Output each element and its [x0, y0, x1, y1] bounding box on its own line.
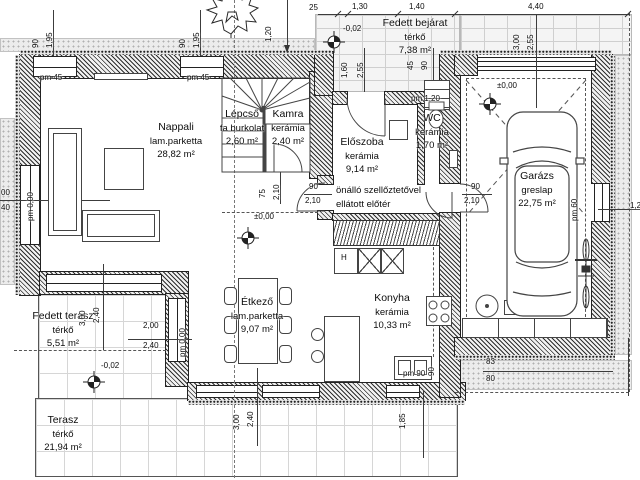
- room-area: 2,40 m²: [271, 135, 305, 149]
- sofa-vertical-cushion: [53, 133, 77, 231]
- dimension-label: 80: [486, 374, 495, 383]
- room-area: 21,94 m²: [44, 441, 82, 455]
- dimension-label: 90: [471, 182, 480, 191]
- window-south-1: [196, 385, 258, 398]
- room-area: 1,70 m²: [415, 139, 449, 153]
- dimension-label: ±0,00: [254, 212, 274, 221]
- dimension-label: 90: [427, 367, 436, 376]
- garage-box: [504, 300, 530, 315]
- dimension-label: 1,60: [340, 62, 349, 78]
- gravel-strip-bottom-right: [455, 360, 632, 390]
- dimension-label: 4,40: [528, 2, 544, 11]
- window-terrace-top: [46, 274, 162, 292]
- room-label: Előszobakerámia9,14 m²: [340, 136, 383, 177]
- room-area: 10,33 m²: [373, 319, 411, 333]
- dimension-label: 40: [1, 203, 10, 212]
- vestibule-closet: [333, 220, 440, 246]
- insulation-garage-bottom: [455, 355, 615, 360]
- room-area: 2,60 m²: [220, 135, 264, 149]
- dimension-label: pm 45: [187, 73, 209, 82]
- window-garage-east: [594, 183, 610, 222]
- room-label: Konyhakerámia10,33 m²: [373, 292, 411, 333]
- overhang-bottom: [455, 392, 629, 393]
- room-floor: kerámia: [340, 150, 383, 164]
- wall-garage-right-a: [592, 55, 612, 183]
- dimension-label: -0,02: [101, 361, 119, 370]
- dimension-label: 83: [486, 357, 495, 366]
- dimension-label: 1,40: [409, 2, 425, 11]
- room-name: Kamra: [271, 108, 305, 122]
- dimension-label: 1,2: [630, 201, 640, 210]
- room-name: Fedett bejárat: [383, 17, 448, 31]
- dimension-label: pm 1,20: [411, 94, 440, 103]
- sofa-horizontal-cushion: [87, 214, 155, 237]
- dimension-label: pm 60: [570, 199, 579, 221]
- floor-plan-canvas: Nappalilam.parketta28,82 m²Lépcsőfa burk…: [0, 0, 640, 480]
- dimension-label: 1,30: [352, 2, 368, 11]
- room-name: Konyha: [373, 292, 411, 306]
- stove: [426, 296, 452, 326]
- dim-line-top: [318, 14, 630, 15]
- dim-line-terrace-win: [103, 264, 104, 350]
- room-floor: lam.parketta: [231, 310, 283, 324]
- dimension-label: 90: [420, 61, 429, 70]
- island-stool: [311, 328, 324, 341]
- dim-line-garagedoor: [536, 14, 537, 108]
- dimension-label: 45: [406, 61, 415, 70]
- dimension-label: 3,00: [232, 414, 241, 430]
- dimension-label: 3,00: [78, 310, 87, 326]
- dimension-label: 90: [31, 39, 40, 48]
- wall-garage-top-a: [455, 55, 477, 75]
- dimension-label: 2,10: [464, 196, 480, 205]
- insulation-right: [610, 55, 615, 355]
- room-label: Garázsgreslap22,75 m²: [518, 170, 556, 211]
- dimension-label: 90: [309, 182, 318, 191]
- wall-hall-stub-b: [318, 211, 333, 219]
- room-floor: térkő: [44, 428, 82, 442]
- centerline-vertical: [234, 0, 235, 478]
- tree: [207, 0, 258, 38]
- tv-console: [94, 73, 148, 80]
- dimension-label: -0,02: [343, 24, 361, 33]
- room-label: Lépcsőfa burkolat2,60 m²: [220, 108, 264, 149]
- room-area: 28,82 m²: [150, 148, 202, 162]
- dimension-label: 2,55: [356, 62, 365, 78]
- dimension-label: 00: [1, 188, 10, 197]
- dimension-label: 75: [258, 189, 267, 198]
- room-label: WCkerámia1,70 m²: [415, 112, 449, 153]
- kitchen-island: [324, 316, 360, 382]
- dining-chair: [224, 345, 237, 363]
- dim-line-8380: [483, 371, 613, 372]
- dimension-label: 1,85: [398, 413, 407, 429]
- window-south-3: [386, 385, 420, 398]
- room-label: Nappalilam.parketta28,82 m²: [150, 121, 202, 162]
- note-text: önálló szellőztetővel: [336, 185, 421, 196]
- garage-workbench: [462, 318, 608, 338]
- dimension-label: 2,55: [526, 34, 535, 50]
- dimension-label: pm 0,00: [26, 192, 35, 221]
- room-name: WC: [415, 112, 449, 126]
- room-area: 5,51 m²: [32, 337, 93, 351]
- dimension-label: 2,40: [143, 341, 159, 350]
- dimension-label: 2,40: [246, 411, 255, 427]
- insulation-garage-top: [440, 50, 612, 55]
- gravel-strip-left: [0, 118, 15, 285]
- room-area: 9,14 m²: [340, 163, 383, 177]
- dimension-label: 2,40: [92, 307, 101, 323]
- dim-line-south-2: [423, 390, 424, 458]
- dimension-label: pm 45: [40, 73, 62, 82]
- dim-line-door-a: [304, 194, 332, 195]
- room-name: Étkező: [231, 296, 283, 310]
- dimension-label: 2,00: [143, 321, 159, 330]
- dimension-label: pm 90: [403, 369, 425, 378]
- dimension-label: pm 0,00: [178, 328, 187, 357]
- room-floor: lam.parketta: [150, 135, 202, 149]
- dimension-label: H: [341, 253, 347, 262]
- dining-chair: [279, 345, 292, 363]
- dim-line-door-b: [462, 194, 492, 195]
- dimension-label: 25: [309, 3, 318, 12]
- terrace-paving: [35, 398, 458, 477]
- room-area: 22,75 m²: [518, 197, 556, 211]
- room-label: Fedett bejárattérkő7,38 m²: [383, 17, 448, 58]
- dim-line-right-edge: [628, 338, 629, 396]
- hall-cabinet: [389, 120, 408, 140]
- kitchen-appliance: [358, 248, 381, 274]
- room-area: 9,07 m²: [231, 323, 283, 337]
- room-name: Terasz: [44, 414, 82, 428]
- wall-garage-bottom: [455, 338, 612, 355]
- coffee-table: [104, 148, 144, 190]
- dimension-label: 90: [178, 39, 187, 48]
- insulation-top: [20, 50, 332, 55]
- room-area: 7,38 m²: [383, 44, 448, 58]
- island-stool: [311, 350, 324, 363]
- room-floor: kerámia: [271, 122, 305, 136]
- dimension-label: 1,95: [192, 32, 201, 48]
- dimension-label: 1,20: [264, 26, 273, 42]
- room-floor: térkő: [383, 31, 448, 45]
- window-south-2: [262, 385, 320, 398]
- driveway-paving: [460, 14, 632, 55]
- room-floor: kerámia: [373, 306, 411, 320]
- room-floor: greslap: [518, 184, 556, 198]
- room-name: Előszoba: [340, 136, 383, 150]
- room-label: Kamrakerámia2,40 m²: [271, 108, 305, 149]
- room-name: Garázs: [518, 170, 556, 184]
- room-label: Terasztérkő21,94 m²: [44, 414, 82, 455]
- wc-basin: [449, 150, 458, 168]
- wall-hall-stub-a: [318, 176, 333, 184]
- room-floor: kerámia: [415, 126, 449, 140]
- dimension-label: 1,95: [45, 32, 54, 48]
- wall-hall-top-a: [333, 92, 347, 104]
- dim-line-tree: [287, 0, 288, 52]
- note-text: ellátott előtér: [336, 199, 390, 210]
- room-name: Nappali: [150, 121, 202, 135]
- room-floor: fa burkolat: [220, 122, 264, 136]
- dimension-label: 3,00: [512, 34, 521, 50]
- dimension-label: 2,10: [305, 196, 321, 205]
- dimension-label: ±0,00: [497, 81, 517, 90]
- wall-entry-corner: [315, 52, 333, 95]
- dim-line-south-1: [257, 368, 258, 446]
- room-label: Étkezőlam.parketta9,07 m²: [231, 296, 283, 337]
- room-name: Lépcső: [220, 108, 264, 122]
- dimension-label: 2,10: [272, 184, 281, 200]
- kitchen-appliance: [381, 248, 404, 274]
